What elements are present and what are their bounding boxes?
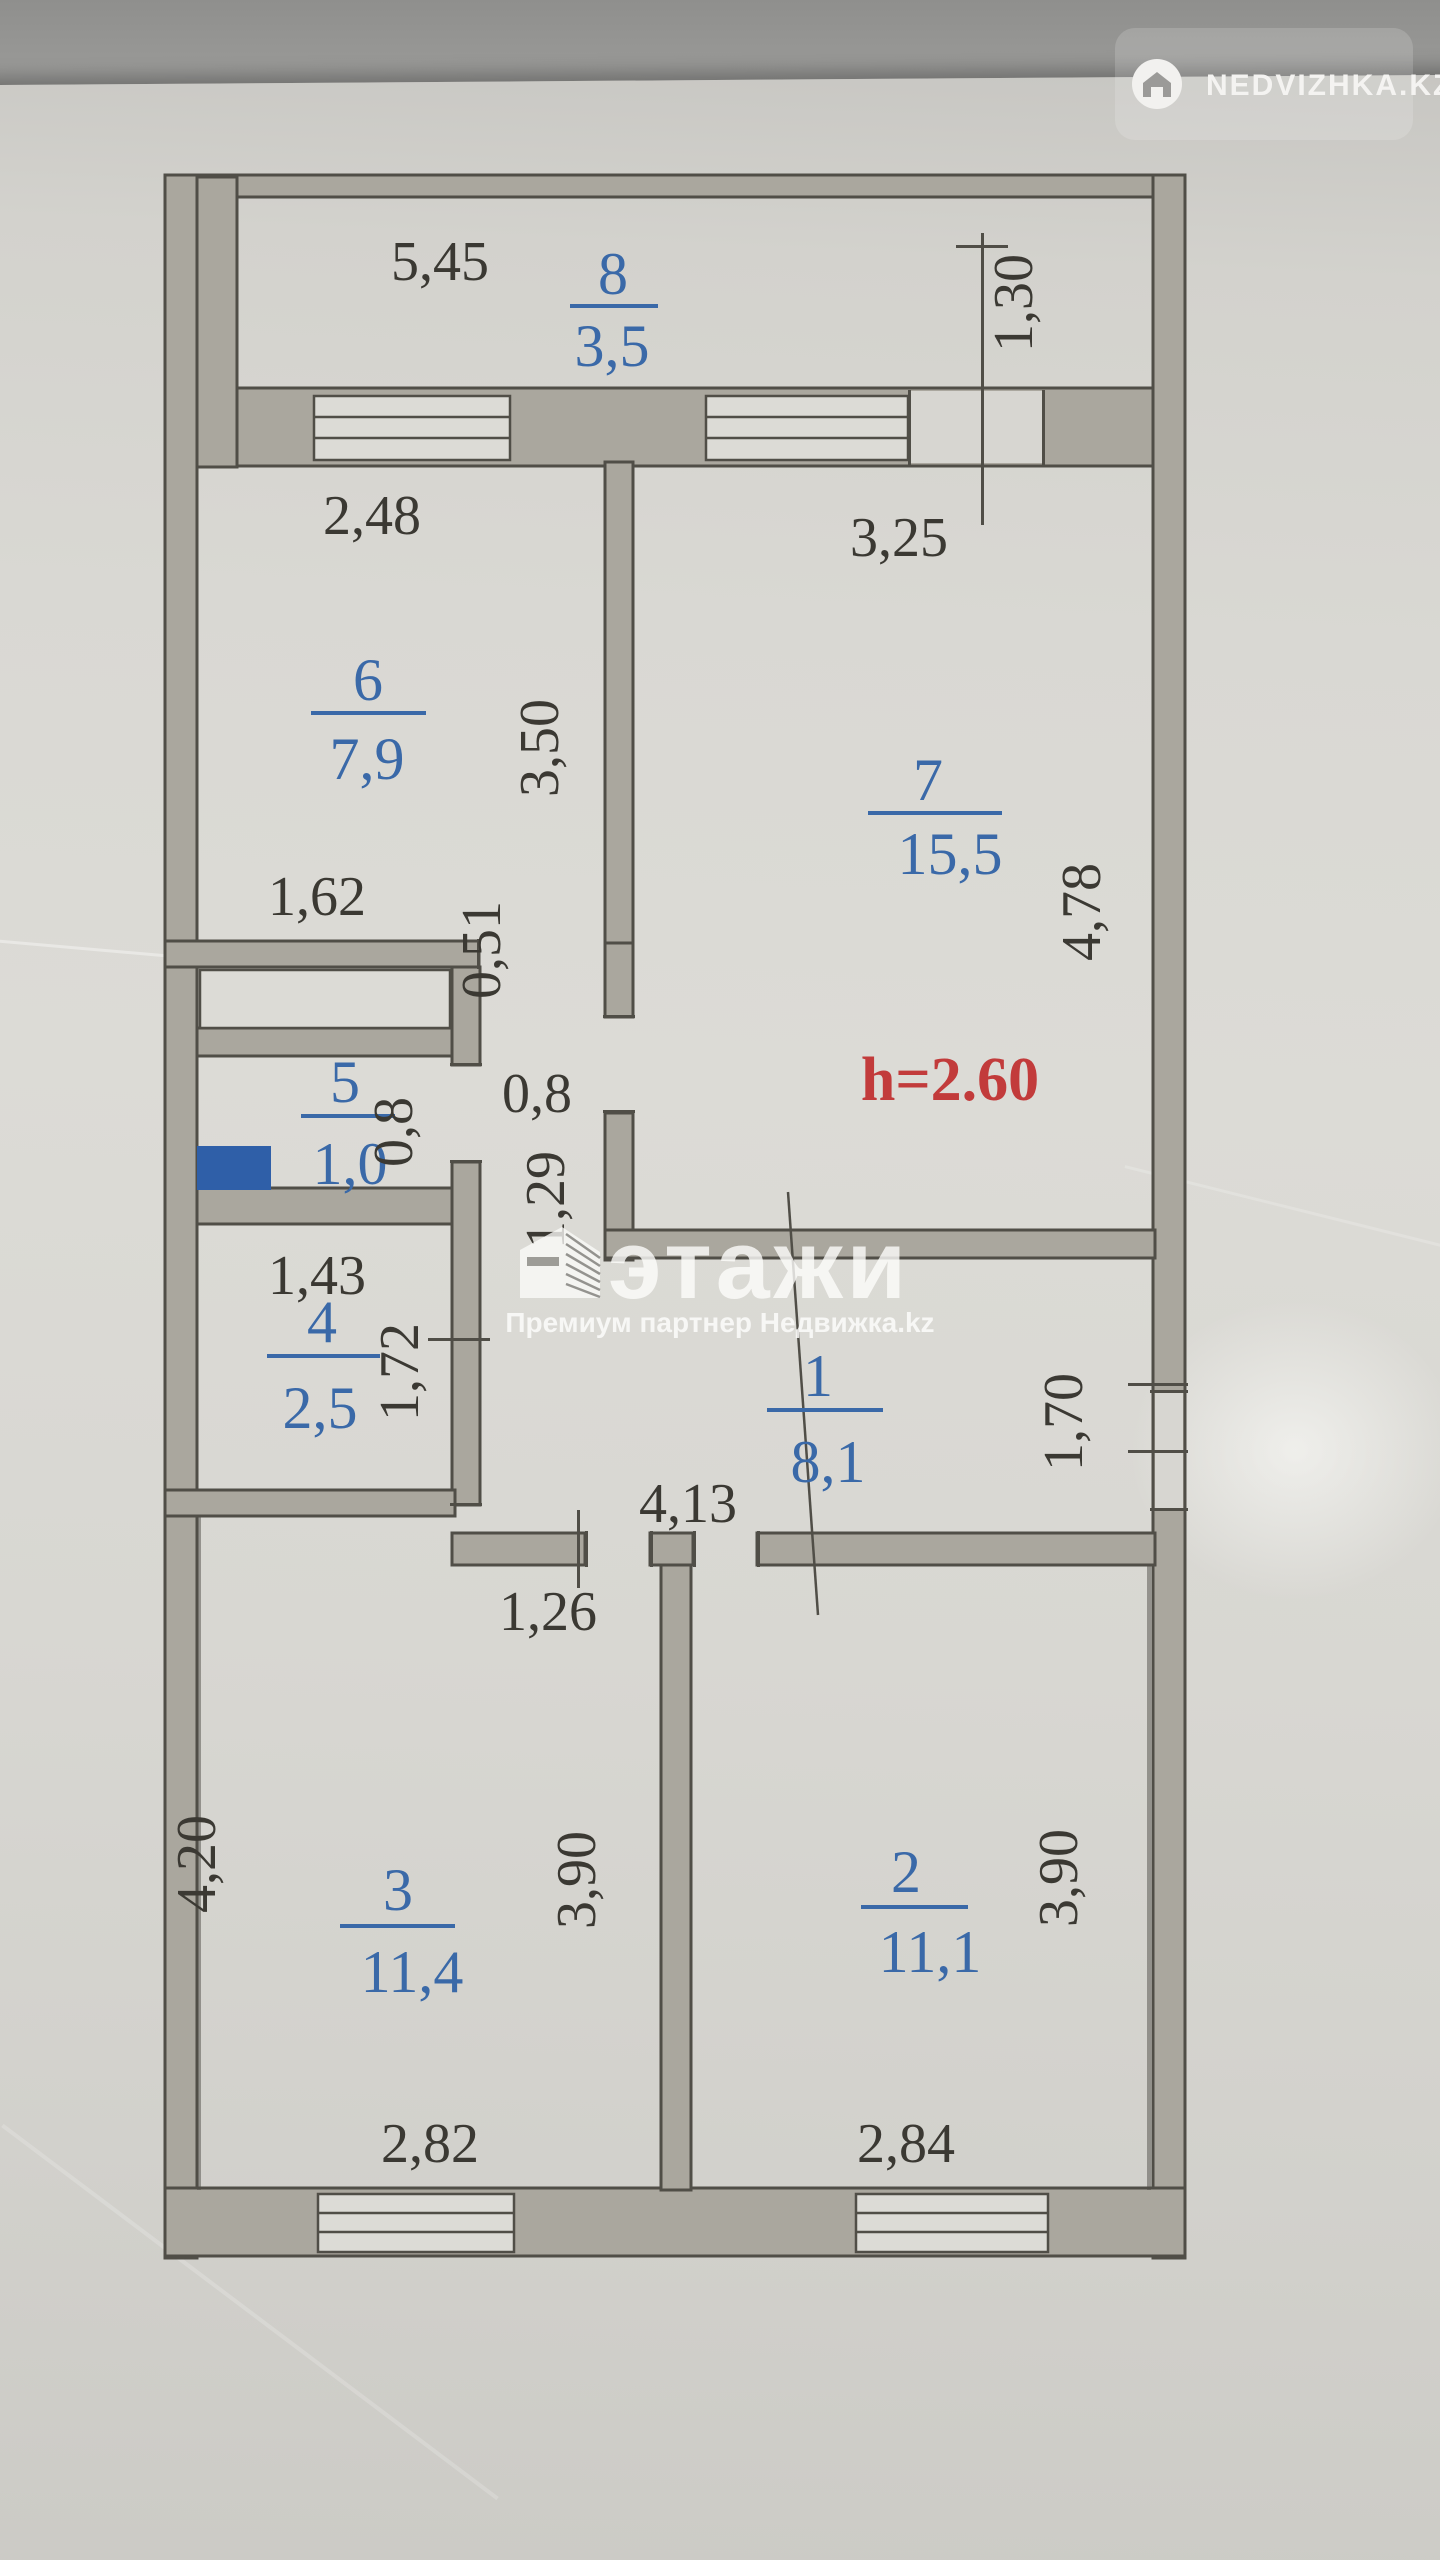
dimension-label: 5,45	[391, 231, 489, 293]
fraction-bar	[267, 1354, 380, 1358]
dimension-label: 0,51	[451, 901, 513, 999]
room-label-4: 4 2,5	[267, 1289, 380, 1441]
dimension-label: 3,50	[509, 699, 571, 797]
room-label-8: 8 3,5	[570, 241, 658, 379]
room-area: 7,9	[330, 726, 405, 792]
room-label-7: 7 15,5	[868, 747, 1003, 887]
balcony-door-opening	[908, 390, 1045, 466]
nedvizhka-badge: NEDVIZHKA.KZ	[1115, 28, 1440, 140]
room-area: 11,4	[361, 1939, 464, 2005]
window-icon	[706, 396, 908, 460]
room-number: 3	[383, 1857, 413, 1923]
room-label-2: 2 11,1	[861, 1839, 981, 1985]
fraction-bar	[868, 811, 1002, 815]
floor-plan: 8 3,5 6 7,9 7 15,5 5 1,0 4	[0, 0, 1440, 2560]
watermark-brand: этажи	[608, 1210, 910, 1319]
room-area: 3,5	[575, 313, 650, 379]
entrance-opening	[1128, 1383, 1188, 1511]
dimension-label: 2,48	[323, 485, 421, 547]
dimension-label: 0,8	[502, 1063, 572, 1125]
dimension-label: 3,90	[1028, 1829, 1090, 1927]
closet-niche	[200, 970, 450, 1028]
room-number: 6	[353, 647, 383, 713]
dimension-label: 1,43	[268, 1245, 366, 1307]
room-label-6: 6 7,9	[311, 647, 426, 792]
watermark-subtitle: Премиум партнер Недвижка.kz	[505, 1307, 934, 1338]
room-number: 7	[913, 747, 943, 813]
room-number: 1	[803, 1343, 833, 1409]
dimension-label: 3,90	[546, 1831, 608, 1929]
room-area: 8,1	[791, 1429, 866, 1495]
fraction-bar	[570, 304, 658, 308]
ceiling-height-label: h=2.60	[861, 1046, 1039, 1114]
dimension-label: 1,26	[499, 1581, 597, 1643]
room-label-3: 3 11,4	[340, 1857, 463, 2005]
dimension-label: 4,78	[1051, 863, 1113, 961]
scanned-floor-plan-photo: 8 3,5 6 7,9 7 15,5 5 1,0 4	[0, 0, 1440, 2560]
dimension-label: 1,62	[268, 866, 366, 928]
badge-label: NEDVIZHKA.KZ	[1206, 69, 1440, 102]
dimension-label: 1,72	[369, 1323, 431, 1421]
fraction-bar	[861, 1905, 968, 1909]
dimension-label: 0,8	[363, 1097, 425, 1167]
window-icon	[314, 396, 510, 460]
room-number: 2	[891, 1839, 921, 1905]
dimension-label: 1,70	[1033, 1373, 1095, 1471]
room-area: 15,5	[898, 821, 1003, 887]
room-label-1: 1 8,1	[767, 1343, 883, 1495]
dimension-label: 2,82	[381, 2113, 479, 2175]
fraction-bar	[311, 711, 426, 715]
window-icon	[856, 2194, 1048, 2252]
dimension-label: 3,25	[850, 507, 948, 569]
dimension-label: 1,30	[983, 254, 1045, 352]
fraction-bar	[767, 1408, 883, 1412]
room-area: 11,1	[879, 1919, 982, 1985]
nedvizhka-house-icon	[1132, 59, 1182, 109]
room-number: 5	[330, 1049, 360, 1115]
window-icon	[318, 2194, 514, 2252]
room-number: 8	[598, 241, 628, 307]
dimension-label: 4,20	[166, 1815, 228, 1913]
room-area: 2,5	[283, 1375, 358, 1441]
blue-marker	[197, 1146, 271, 1190]
dimension-label: 2,84	[857, 2113, 955, 2175]
dimension-label: 4,13	[639, 1473, 737, 1535]
fraction-bar	[340, 1924, 455, 1928]
